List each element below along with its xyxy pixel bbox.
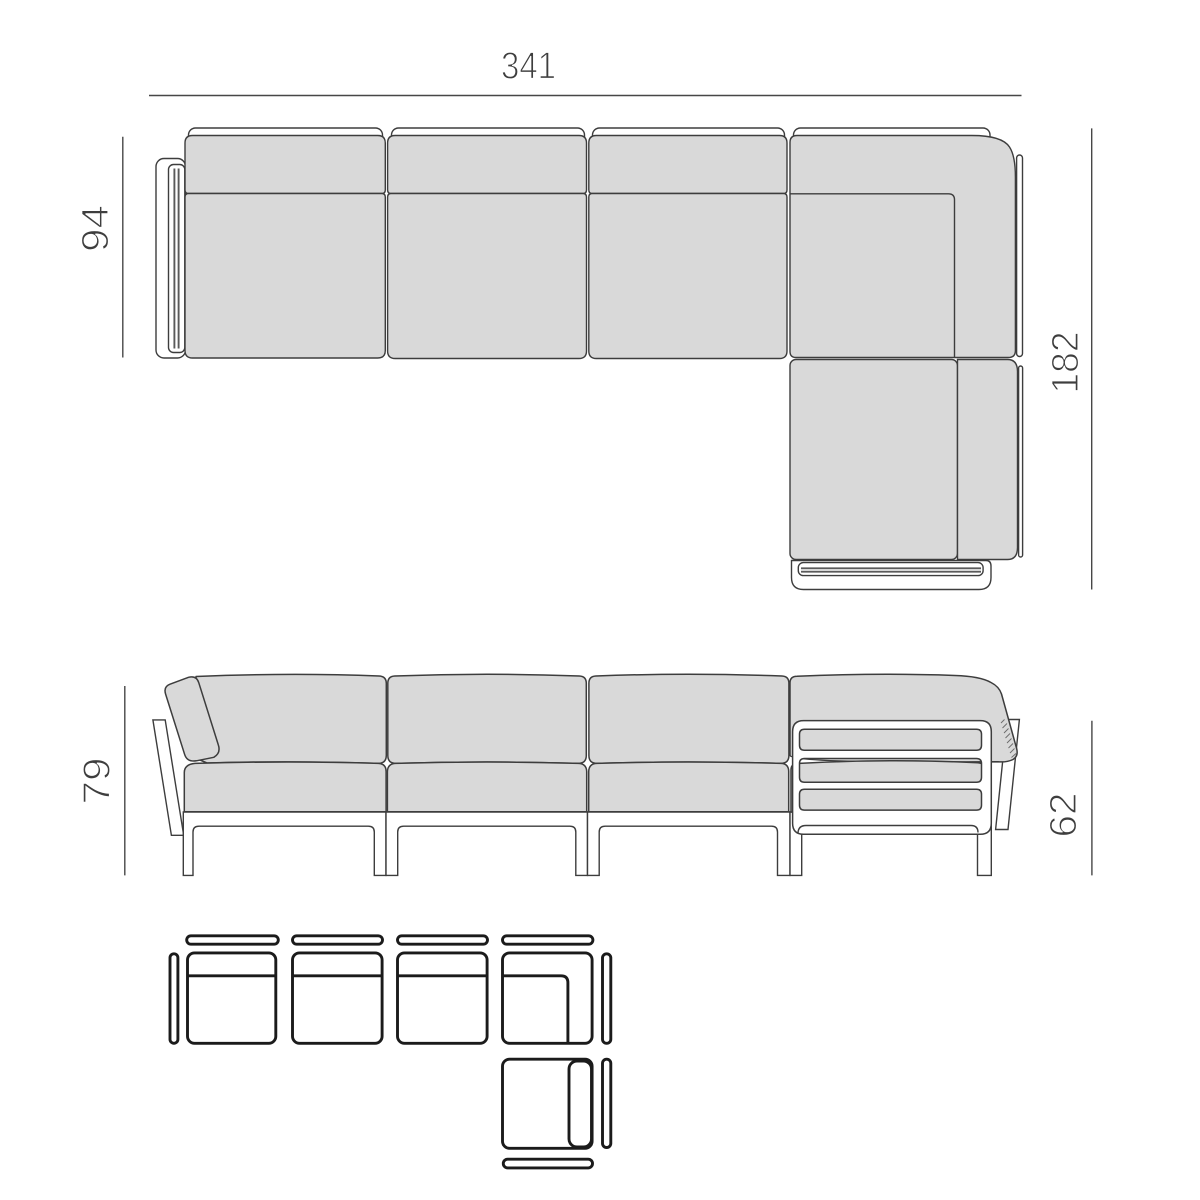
- svg-text:341: 341: [501, 46, 556, 88]
- svg-text:94: 94: [75, 205, 117, 252]
- svg-text:62: 62: [1043, 793, 1085, 838]
- svg-text:79: 79: [77, 758, 119, 805]
- svg-text:182: 182: [1045, 332, 1087, 394]
